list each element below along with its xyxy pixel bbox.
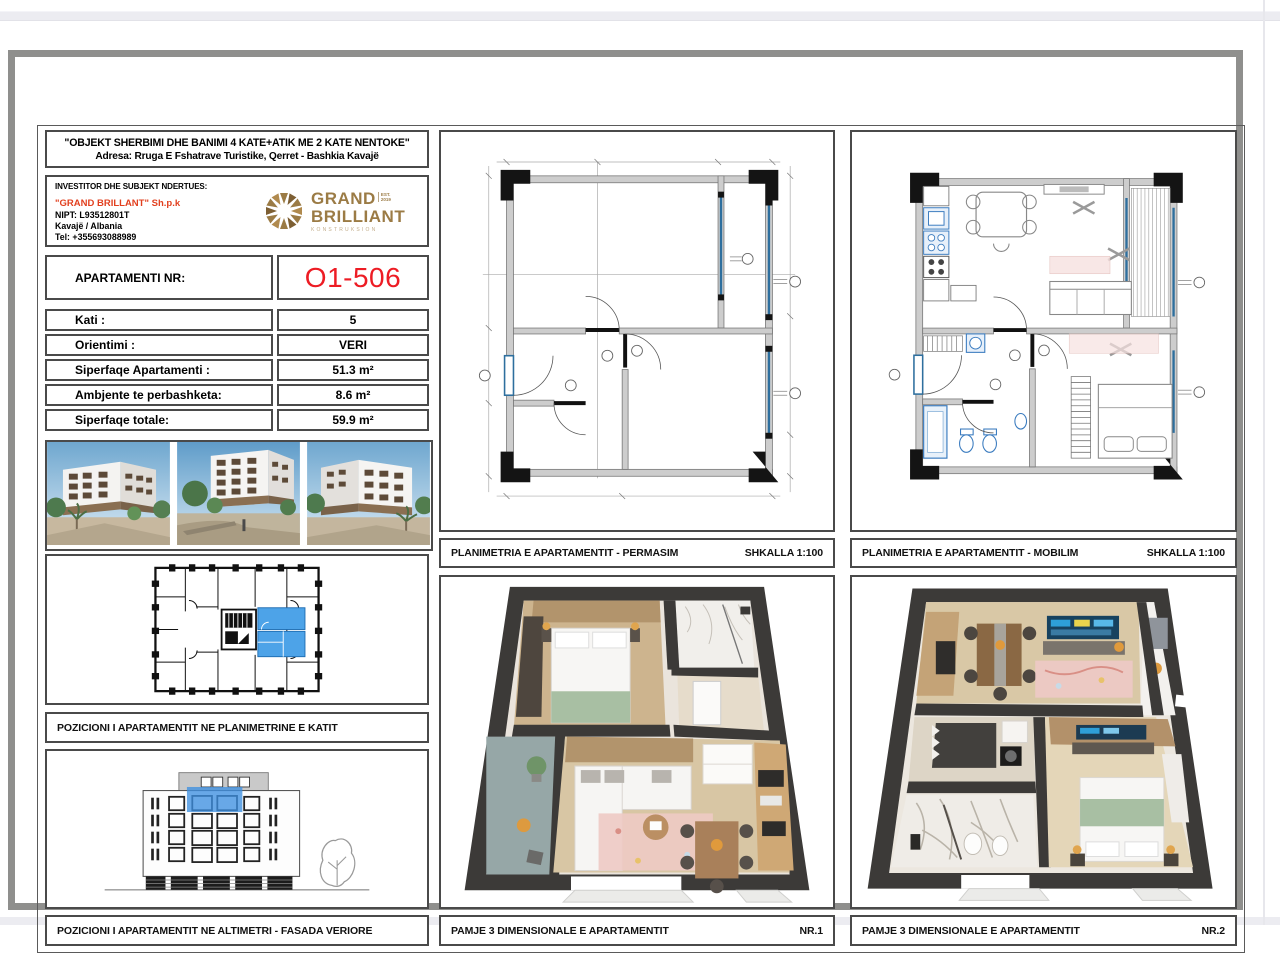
apartment-nr-label-box: APARTAMENTI NR: [45, 255, 273, 300]
floor-plan-permasim-drawing [469, 148, 805, 514]
viewer-top-strip [0, 11, 1280, 21]
detail-label-siperfaqe-totale: Siperfaqe totale: [45, 409, 273, 431]
project-title-box: "OBJEKT SHERBIMI DHE BANIMI 4 KATE+ATIK … [45, 130, 429, 168]
detail-label-orientimi: Orientimi : [45, 334, 273, 356]
elevation-box [45, 749, 429, 909]
floor-plan-mobilim-drawing [879, 151, 1209, 511]
view-3d-1-nr: NR.1 [799, 925, 823, 937]
plan-mobilim-title: PLANIMETRIA E APARTAMENTIT - MOBILIM [862, 547, 1078, 559]
view-3d-2-caption-bar: PAMJE 3 DIMENSIONALE E APARTAMENTIT NR.2 [850, 915, 1237, 946]
view-3d-1-title: PAMJE 3 DIMENSIONALE E APARTAMENTIT [451, 925, 669, 937]
floor-plan-mobilim-box [850, 130, 1237, 532]
logo-sunburst-icon [263, 190, 305, 232]
grand-brilliant-logo: GRAND EST.2019 BRILLIANT KONSTRUKSION [263, 186, 421, 236]
logo-word-brilliant: BRILLIANT [311, 208, 405, 225]
investor-box: INVESTITOR DHE SUBJEKT NDERTUES: "GRAND … [45, 175, 429, 247]
architectural-sheet: "OBJEKT SHERBIMI DHE BANIMI 4 KATE+ATIK … [8, 50, 1243, 910]
key-plan-drawing [137, 557, 337, 702]
plan-mobilim-caption-bar: PLANIMETRIA E APARTAMENTIT - MOBILIM SHK… [850, 538, 1237, 568]
building-photo-2 [177, 442, 300, 545]
detail-value-ambjente: 8.6 m² [277, 384, 429, 406]
view-3d-2-box [850, 575, 1237, 909]
project-address: Adresa: Rruga E Fshatrave Turistike, Qer… [95, 151, 378, 162]
viewer-right-divider [1263, 0, 1265, 925]
detail-value-siperfaqe-apartamenti: 51.3 m² [277, 359, 429, 381]
logo-est-year: EST.2019 [378, 192, 391, 203]
building-photo-3 [307, 442, 430, 545]
detail-label-ambjente: Ambjente te perbashketa: [45, 384, 273, 406]
detail-label-kati: Kati : [45, 309, 273, 331]
key-plan-box [45, 554, 429, 705]
plan-mobilim-scale: SHKALLA 1:100 [1147, 547, 1225, 559]
detail-value-orientimi: VERI [277, 334, 429, 356]
plan-permasim-caption-bar: PLANIMETRIA E APARTAMENTIT - PERMASIM SH… [439, 538, 835, 568]
detail-value-siperfaqe-totale: 59.9 m² [277, 409, 429, 431]
plan-permasim-scale: SHKALLA 1:100 [745, 547, 823, 559]
elevation-drawing [57, 753, 417, 905]
apartment-number: O1-506 [277, 255, 429, 300]
plan-permasim-title: PLANIMETRIA E APARTAMENTIT - PERMASIM [451, 547, 678, 559]
view-3d-2-drawing [854, 577, 1234, 907]
document-viewer-page: "OBJEKT SHERBIMI DHE BANIMI 4 KATE+ATIK … [0, 0, 1280, 925]
view-3d-1-caption-bar: PAMJE 3 DIMENSIONALE E APARTAMENTIT NR.1 [439, 915, 835, 946]
detail-value-kati: 5 [277, 309, 429, 331]
view-3d-2-title: PAMJE 3 DIMENSIONALE E APARTAMENTIT [862, 925, 1080, 937]
project-title: "OBJEKT SHERBIMI DHE BANIMI 4 KATE+ATIK … [64, 137, 409, 149]
key-plan-caption: POZICIONI I APARTAMENTIT NE PLANIMETRINE… [45, 712, 429, 743]
logo-subtitle: KONSTRUKSION [311, 228, 405, 233]
building-photos [45, 440, 433, 551]
view-3d-1-drawing [443, 577, 831, 907]
elevation-apartment-highlight [187, 787, 242, 812]
key-plan-apartment-highlight [258, 608, 305, 657]
view-3d-1-box [439, 575, 835, 909]
building-photo-1 [47, 442, 170, 545]
elevation-caption: POZICIONI I APARTAMENTIT NE ALTIMETRI - … [45, 915, 429, 946]
floor-plan-permasim-box [439, 130, 835, 532]
detail-label-siperfaqe-apartamenti: Siperfaqe Apartamenti : [45, 359, 273, 381]
view-3d-2-nr: NR.2 [1201, 925, 1225, 937]
logo-word-grand: GRAND [311, 190, 376, 207]
